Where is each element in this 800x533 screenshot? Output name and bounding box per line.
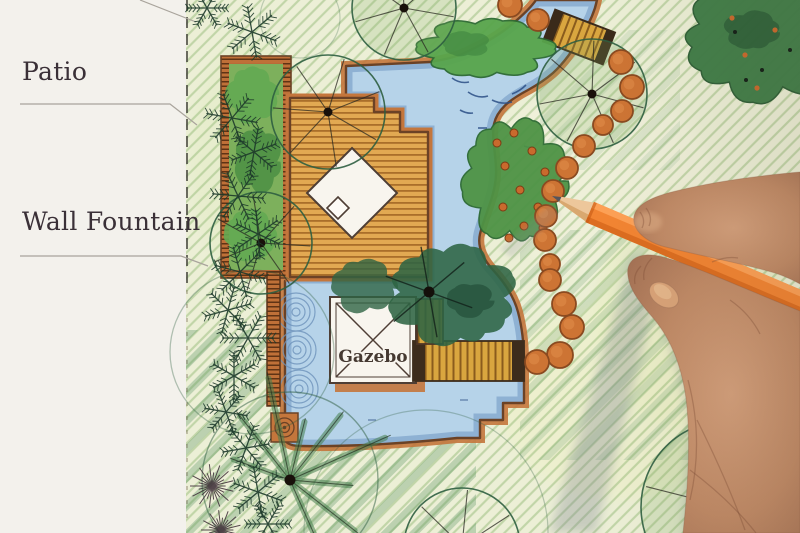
patio-label: Patio [22, 57, 87, 86]
photo-vignette [0, 0, 800, 533]
garden-plan-drawing: Gazebo [0, 0, 800, 533]
wall-fountain-label: Wall Fountain [22, 207, 201, 236]
landscape-plan-photo: Gazebo [0, 0, 800, 533]
